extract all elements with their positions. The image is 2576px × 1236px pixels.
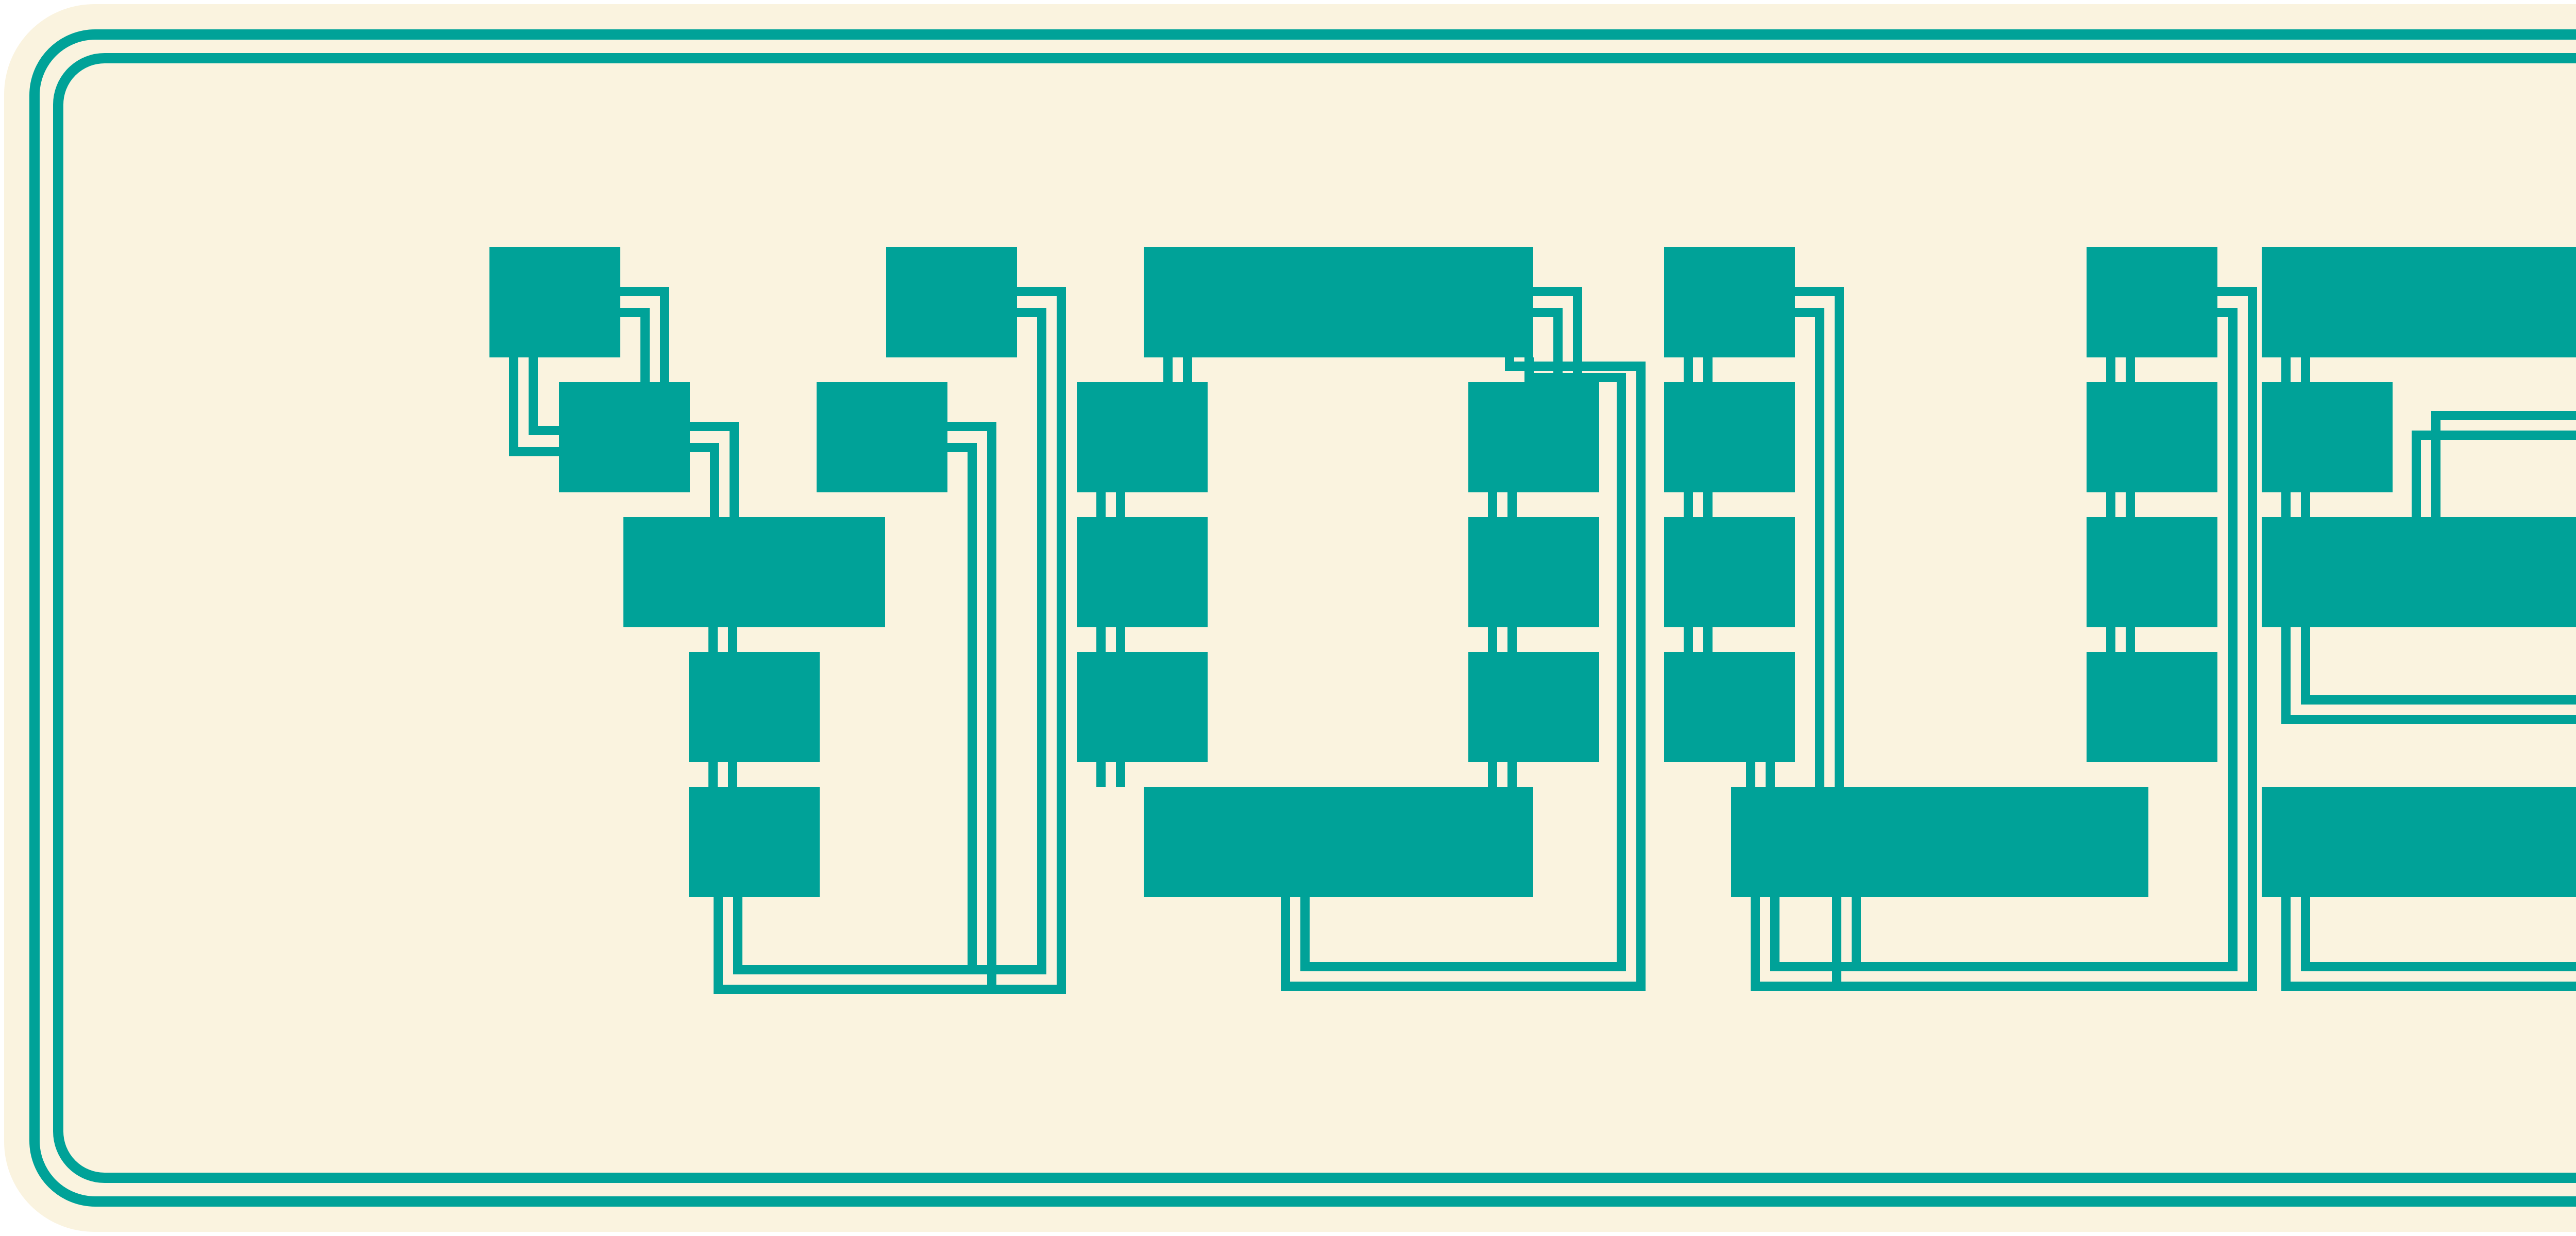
letter-O-block [1468,652,1599,762]
letter-U-block [1664,247,1795,357]
letter-U-block [2087,247,2217,357]
letter-O-block [1144,247,1533,357]
letter-O-block [1144,787,1533,897]
letter-O-block [1077,652,1208,762]
letter-S-block [2262,517,2576,627]
letter-U-block [2087,382,2217,492]
letter-U-block [1664,652,1795,762]
letter-O-block [1468,382,1599,492]
letter-U-block [2087,652,2217,762]
letter-Y-block [689,787,820,897]
letter-O-block [1077,382,1208,492]
letter-S-block [2262,247,2576,357]
letter-Y-block [559,382,690,492]
letter-U-block [1731,787,2148,897]
letter-S-block [2262,382,2393,492]
letter-S-block [2262,787,2576,897]
letter-Y-block [817,382,947,492]
letter-O-block [1468,517,1599,627]
yousim-logo [0,0,2576,1236]
logo-card [0,0,2576,1236]
letter-Y-block [489,247,620,357]
letter-O-block [1077,517,1208,627]
letter-Y-block [886,247,1017,357]
letter-Y-block [623,517,885,627]
letter-U-block [1664,382,1795,492]
letter-Y-block [689,652,820,762]
letter-U-block [2087,517,2217,627]
letter-U-block [1664,517,1795,627]
